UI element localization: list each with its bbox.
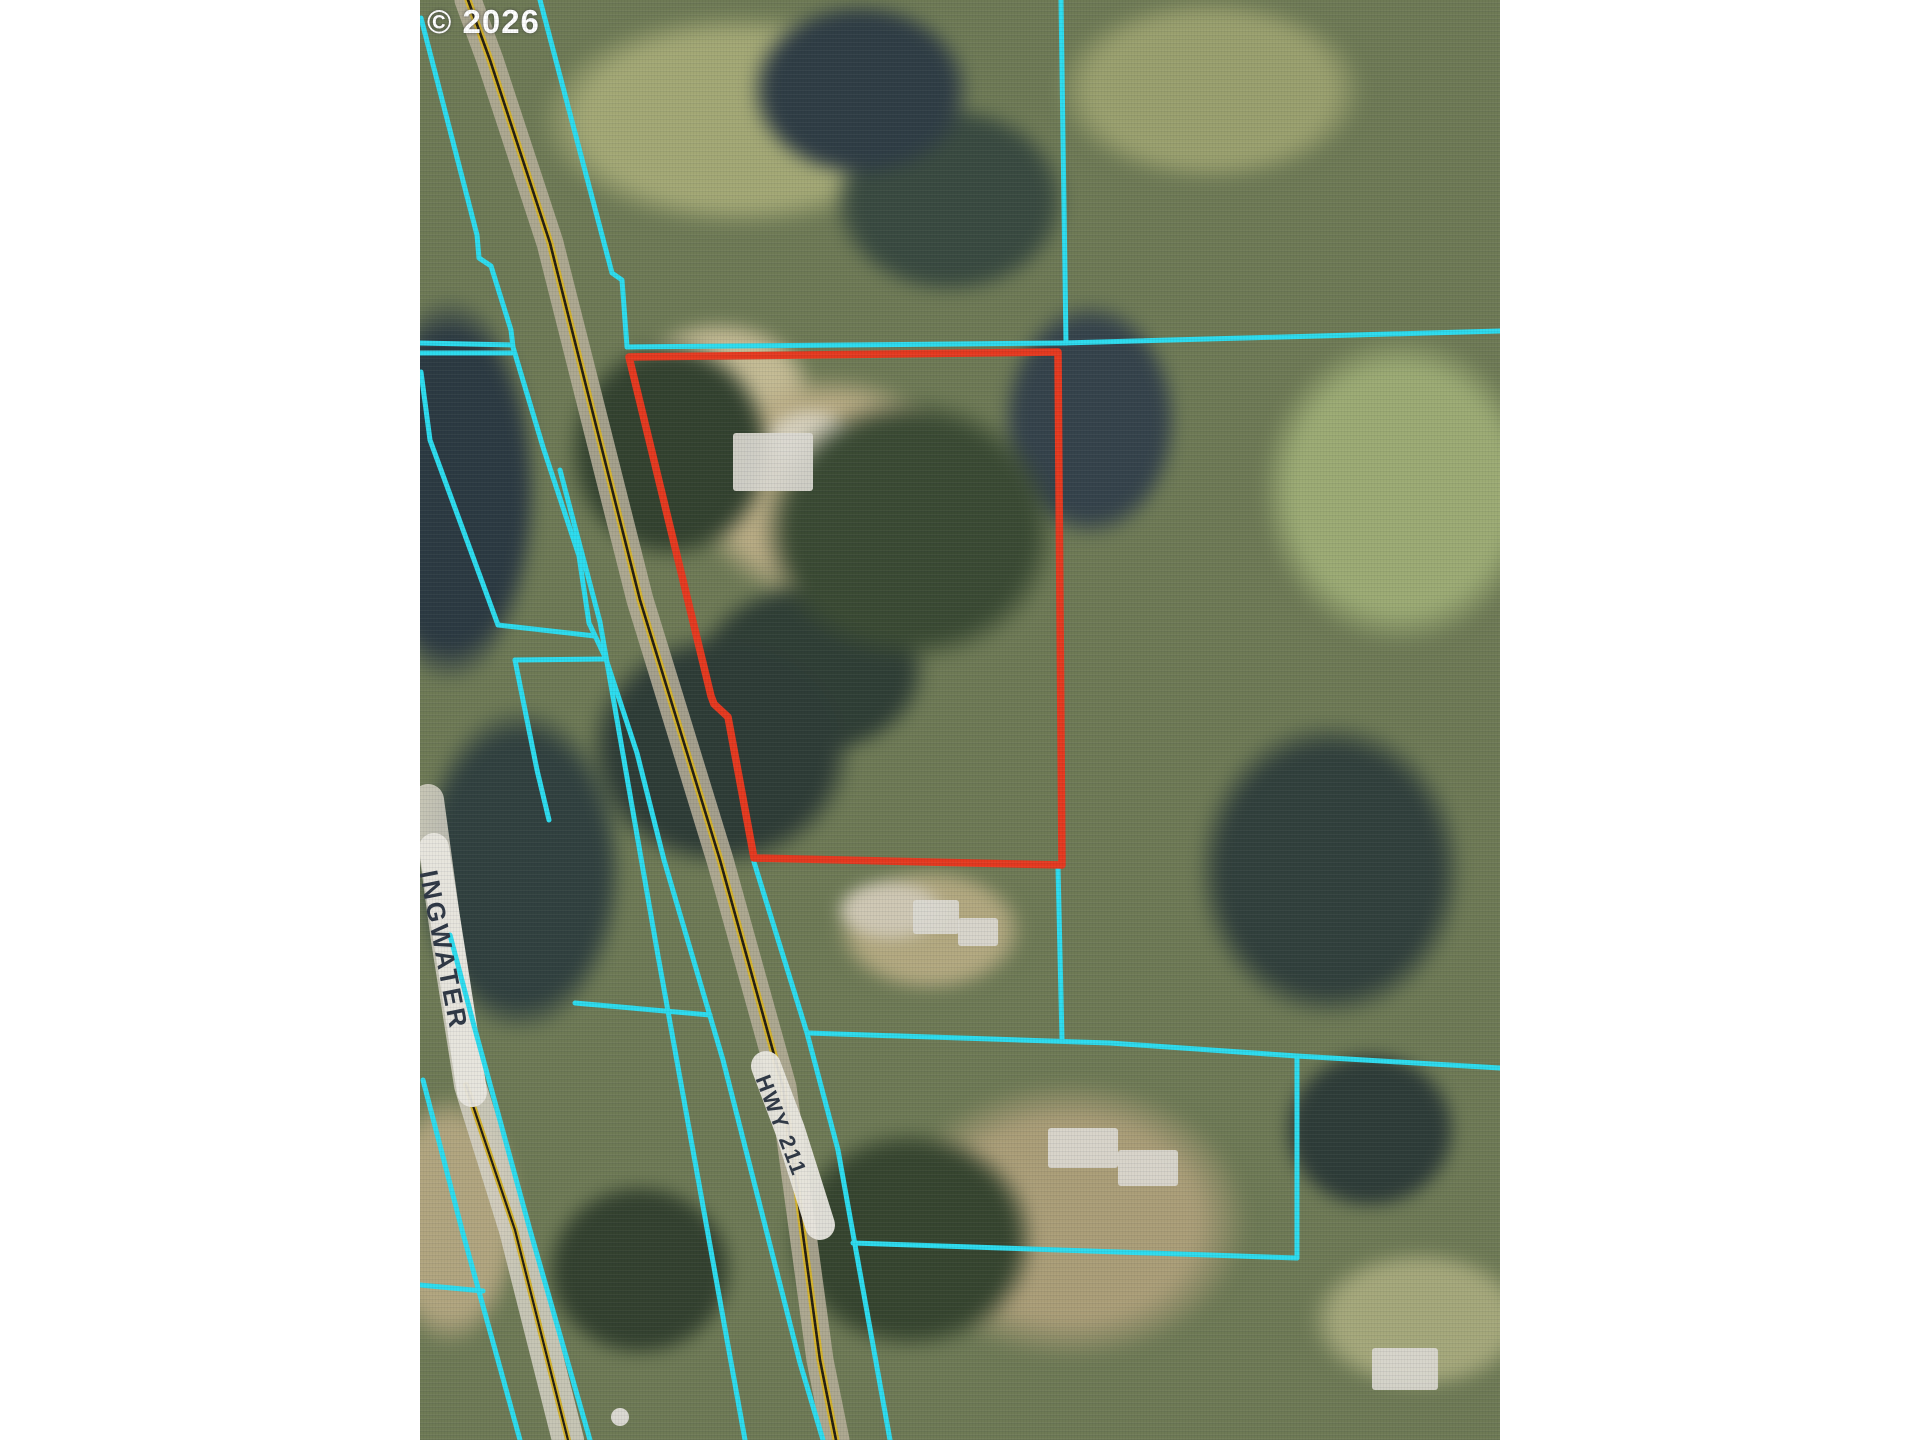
parcel-line-7 xyxy=(853,1243,1297,1258)
copyright-label: © 2026 xyxy=(427,5,540,38)
parcel-line-4 xyxy=(1058,867,1062,1040)
building-footprint xyxy=(1118,1150,1178,1186)
parcel-line-18 xyxy=(575,1003,710,1015)
parcel-overlay xyxy=(420,0,1500,1440)
parcel-line-16 xyxy=(515,660,549,820)
aerial-map: © 2026 INGWATER HWY 211 xyxy=(420,0,1500,1440)
building-footprint xyxy=(913,900,959,934)
parcel-line-15 xyxy=(515,659,606,660)
parcel-line-19 xyxy=(420,1285,483,1291)
parcel-line-14 xyxy=(498,625,595,636)
building-footprint xyxy=(733,433,813,491)
building-footprint xyxy=(958,918,998,946)
building-footprint xyxy=(1048,1128,1118,1168)
page-background: © 2026 INGWATER HWY 211 xyxy=(0,0,1920,1440)
parcel-line-5 xyxy=(808,1033,1500,1068)
building-footprint xyxy=(1372,1348,1438,1390)
parcel-line-17 xyxy=(421,372,498,625)
parcel-line-2 xyxy=(1061,0,1066,343)
parcel-line-12 xyxy=(420,343,512,345)
parcel-line-9 xyxy=(421,18,823,1440)
parcel-line-11 xyxy=(450,935,590,1440)
small-structure xyxy=(611,1408,629,1426)
